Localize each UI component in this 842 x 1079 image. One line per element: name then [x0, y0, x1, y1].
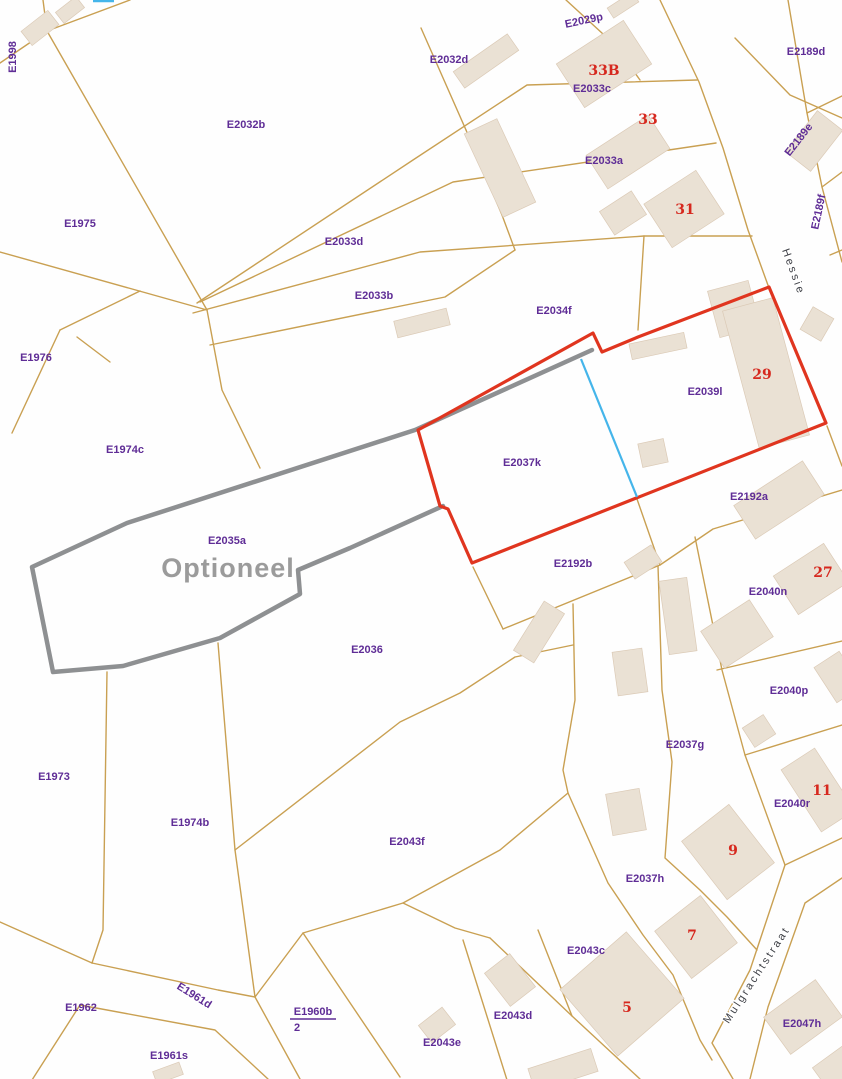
parcel-label: E2032b — [227, 119, 266, 131]
parcel-label: E2043c — [567, 945, 605, 957]
house-number-label: 11 — [812, 783, 831, 799]
parcel-label: E2039l — [688, 386, 723, 398]
cadastral-map-viewport[interactable]: HessieMulgrachtstraatE1998E2029pE2032dE2… — [0, 0, 842, 1079]
cadastral-map-canvas[interactable]: HessieMulgrachtstraatE1998E2029pE2032dE2… — [0, 0, 842, 1079]
parcel-label: E2035a — [208, 535, 247, 547]
parcel-label: E1962 — [65, 1002, 97, 1014]
parcel-label: E1960b — [294, 1006, 333, 1018]
building-footprint — [638, 439, 668, 468]
parcel-label: 2 — [294, 1022, 300, 1034]
parcel-label: E2033a — [585, 155, 624, 167]
house-number-label: 27 — [813, 565, 832, 581]
parcel-label: E2037h — [626, 873, 665, 885]
building-footprint — [612, 648, 648, 696]
parcel-label: E2043e — [423, 1037, 461, 1049]
parcel-label: E1973 — [38, 771, 70, 783]
parcel-label: E1974b — [171, 817, 210, 829]
parcel-label: E2036 — [351, 644, 383, 656]
parcel-label: E2043f — [389, 836, 425, 848]
parcel-label: E1974c — [106, 444, 144, 456]
parcel-label: E2032d — [430, 54, 469, 66]
parcel-label: E2033d — [325, 236, 364, 248]
house-number-label: 5 — [622, 1000, 632, 1016]
house-number-label: 31 — [675, 202, 694, 218]
parcel-label: E2047h — [783, 1018, 822, 1030]
parcel-label: E2034f — [536, 305, 572, 317]
parcel-label: E2192a — [730, 491, 769, 503]
parcel-label: E1976 — [20, 352, 52, 364]
parcel-label: E1961s — [150, 1050, 188, 1062]
parcel-label: E1975 — [64, 218, 96, 230]
house-number-label: 7 — [687, 928, 697, 944]
house-number-label: 33 — [638, 112, 657, 128]
parcel-label: E2043d — [494, 1010, 533, 1022]
parcel-label: E2040p — [770, 685, 809, 697]
parcel-label: E2040r — [774, 798, 811, 810]
optioneel-label: Optioneel — [161, 553, 295, 583]
parcel-label: E2037g — [666, 739, 705, 751]
parcel-label: E1998 — [7, 41, 19, 73]
parcel-label: E2033b — [355, 290, 394, 302]
house-number-label: 29 — [752, 367, 771, 383]
parcel-label: E2033c — [573, 83, 611, 95]
parcel-label: E2040n — [749, 586, 788, 598]
parcel-label: E2037k — [503, 457, 542, 469]
house-number-label: 9 — [728, 843, 738, 859]
parcel-label: E2189d — [787, 46, 826, 58]
parcel-label: E2192b — [554, 558, 593, 570]
house-number-label: 33B — [588, 63, 619, 79]
building-footprint — [606, 788, 647, 835]
